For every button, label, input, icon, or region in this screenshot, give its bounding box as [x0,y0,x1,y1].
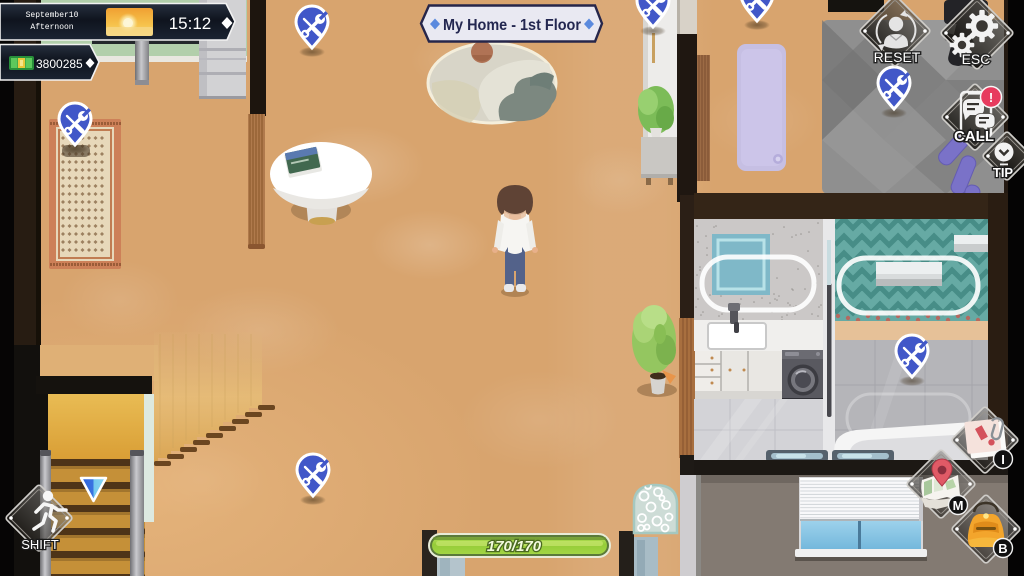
svg-text:M: M [953,498,964,513]
svg-text:Afternoon: Afternoon [30,23,73,32]
svg-text:B: B [998,541,1007,556]
svg-text:My Home - 1st Floor: My Home - 1st Floor [443,17,581,34]
svg-text:3800285: 3800285 [36,57,83,71]
svg-text:SHIFT: SHIFT [21,537,59,552]
svg-text:RESET: RESET [874,49,921,65]
svg-text:170/170: 170/170 [487,538,542,555]
svg-text:!: ! [989,90,993,105]
svg-text:15:12: 15:12 [169,14,212,33]
svg-text:I: I [1001,452,1005,467]
svg-text:September10: September10 [26,11,79,20]
svg-text:CALL: CALL [954,128,994,145]
svg-text:ESC: ESC [962,51,991,67]
svg-text:TIP: TIP [993,165,1014,180]
